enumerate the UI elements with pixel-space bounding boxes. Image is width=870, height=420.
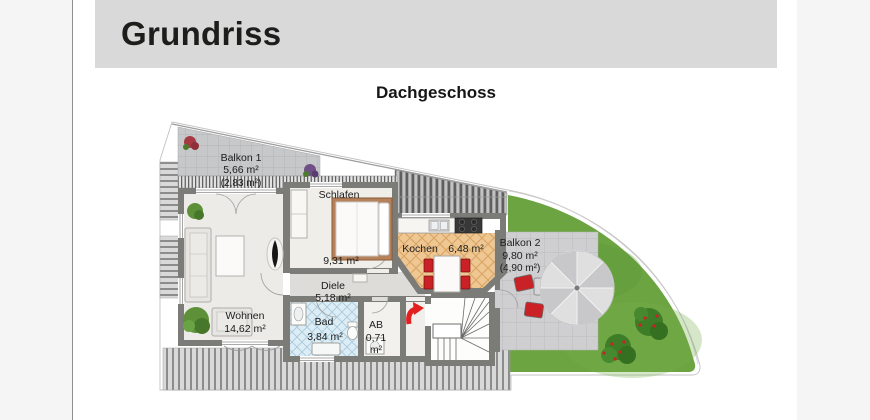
- shower-tray: [312, 343, 340, 355]
- label-balkon2-area2: (4,90 m²): [500, 263, 541, 274]
- label-ab-unit: m²: [370, 344, 383, 356]
- label-bad-name: Bad: [315, 316, 334, 328]
- label-diele-name: Diele: [321, 280, 345, 292]
- toilet-icon: [348, 322, 358, 340]
- label-schlafen-name: Schlafen: [319, 189, 360, 201]
- terrace-chair: [524, 302, 544, 318]
- stove-icon: [455, 218, 482, 233]
- dining-table: [434, 256, 460, 292]
- floor-plan: Balkon 1 5,66 m² (2,83 m²) Schlafen 9,31…: [152, 112, 712, 402]
- label-balkon2-area: 9,80 m²: [502, 250, 538, 262]
- label-ab-name: AB: [369, 319, 383, 331]
- label-schlafen-area: 9,31 m²: [323, 255, 359, 267]
- label-ab-area: 0,71: [366, 332, 387, 344]
- label-balkon2-name: Balkon 2: [500, 237, 541, 249]
- room-balkon1: [178, 127, 397, 188]
- screen: Grundriss Dachgeschoss: [0, 0, 870, 420]
- header-bar: Grundriss: [95, 0, 777, 68]
- label-wohnen-area: 14,62 m²: [224, 323, 266, 335]
- label-bad-area: 3,84 m²: [307, 331, 343, 343]
- label-kochen-area: 6,48 m²: [448, 243, 484, 255]
- label-diele-area: 5,18 m²: [315, 292, 351, 304]
- label-wohnen-name: Wohnen: [226, 310, 265, 322]
- parasol-icon: [540, 251, 614, 325]
- stair-landing: [433, 324, 461, 338]
- label-balkon1-name: Balkon 1: [221, 152, 262, 164]
- label-balkon1-area: 5,66 m²: [223, 164, 259, 176]
- coffee-table: [216, 236, 244, 276]
- page-title: Grundriss: [121, 15, 281, 53]
- sink-icon: [429, 220, 449, 231]
- decor-niche: [267, 238, 283, 270]
- bed: [332, 198, 392, 260]
- plan-title: Dachgeschoss: [302, 83, 570, 103]
- label-kochen-name: Kochen: [402, 243, 438, 255]
- dresser: [353, 274, 367, 282]
- left-panel: [0, 0, 73, 420]
- label-balkon1-area2: (2,83 m²): [221, 178, 262, 189]
- right-panel: [797, 0, 870, 420]
